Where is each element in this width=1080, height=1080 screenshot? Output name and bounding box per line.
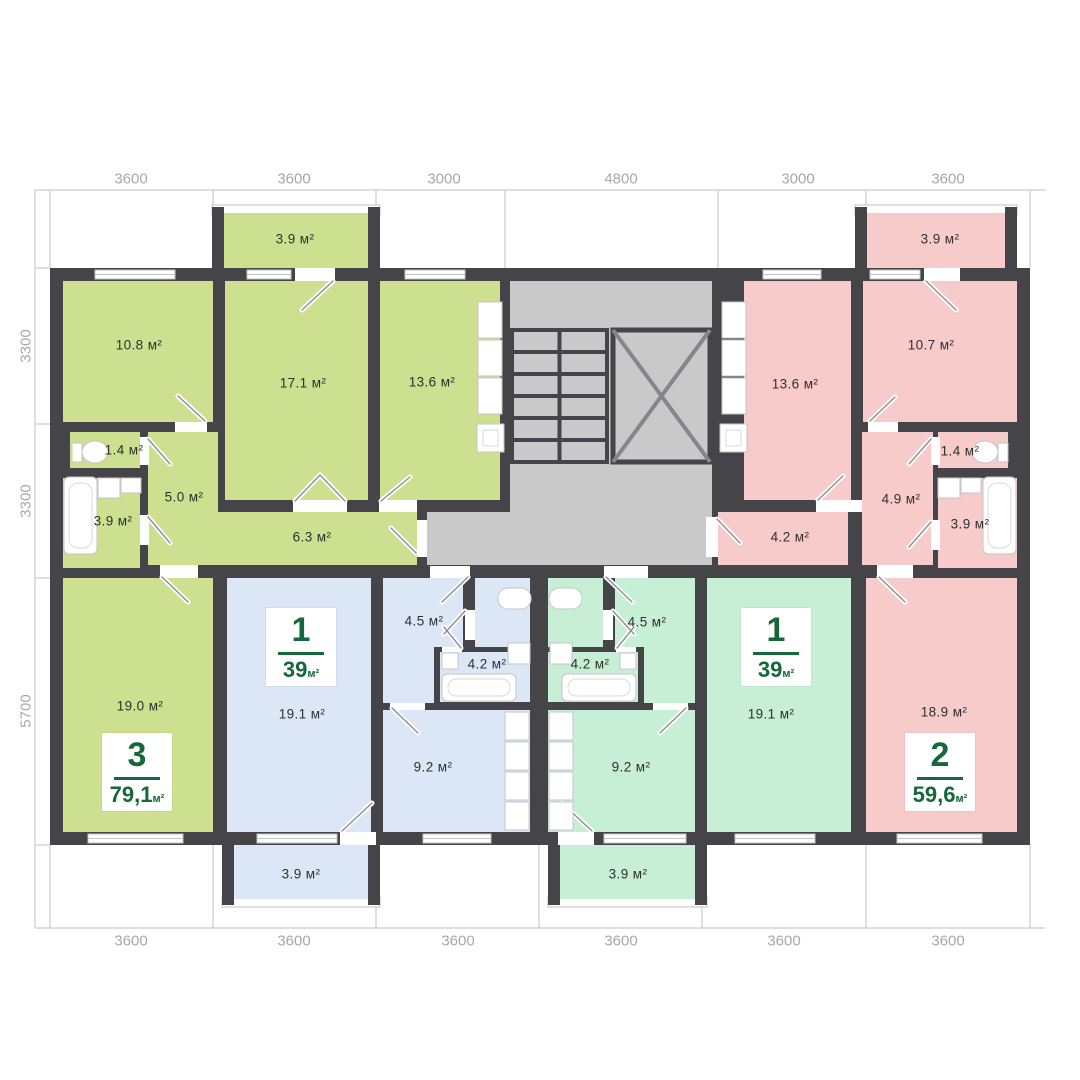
room-area-label: 4.2 м² [771,530,810,545]
staircase [512,330,607,462]
room-area-label: 5.0 м² [165,490,204,505]
apartment-area-value: 39 [758,657,782,682]
room-area-label: 4.5 м² [628,615,667,630]
floor-plan-drawing [0,0,1080,1080]
apartment-badge-3: 3 79,1м² [102,733,172,811]
room-area-label: 18.9 м² [921,705,968,720]
dim-top-6: 3600 [931,171,964,188]
room-area-label: 9.2 м² [414,760,453,775]
apartment-area-value: 79,1 [110,782,153,807]
room-area-label: 19.0 м² [117,699,164,714]
room-area-label: 6.3 м² [293,530,332,545]
room-area-label: 4.9 м² [882,492,921,507]
dim-left-3: 5700 [18,694,35,727]
room-area-label: 13.6 м² [772,377,819,392]
room-area-label: 3.9 м² [921,232,960,247]
sink-icon [549,588,582,609]
dim-top-3: 3000 [427,171,460,188]
apartment-badge-1-mint: 1 39м² [741,608,811,686]
room-area-label: 17.1 м² [280,376,327,391]
dim-left-1: 3300 [18,329,35,362]
dim-top-1: 3600 [114,171,147,188]
apartment-area-unit: м² [956,793,968,805]
badge-divider [278,652,324,655]
room-area-label: 13.6 м² [409,375,456,390]
dim-bottom-6: 3600 [931,933,964,950]
apartment-area: 59,6м² [913,784,968,806]
washer-icon [98,478,120,498]
bathtub-icon [562,674,636,701]
room-area-label: 19.1 м² [279,707,326,722]
kitchen-unit-icon [549,712,573,740]
elevator-shaft [613,330,710,462]
bathtub-icon [442,674,516,701]
dim-top-4: 4800 [604,171,637,188]
kitchen-unit-icon [505,712,529,740]
dim-left-2: 3300 [18,484,35,517]
dim-bottom-3: 3600 [441,933,474,950]
room-area-label: 3.9 м² [951,517,990,532]
room-area-label: 3.9 м² [282,867,321,882]
dim-bottom-4: 3600 [604,933,637,950]
room-17-1 [225,281,368,500]
badge-divider [114,777,160,780]
apartment-area-value: 59,6 [913,782,956,807]
room-area-label: 3.9 м² [94,514,133,529]
badge-divider [917,777,963,780]
apartment-number: 1 [767,613,786,647]
dim-bottom-1: 3600 [114,933,147,950]
corridor [427,512,712,565]
room-area-label: 4.2 м² [571,657,610,672]
room-area-label: 1.4 м² [105,443,144,458]
apartment-area-unit: м² [153,793,165,805]
dim-top-2: 3600 [277,171,310,188]
room-area-label: 3.9 м² [609,867,648,882]
apartment-number: 2 [931,738,950,772]
room-area-label: 4.2 м² [468,657,507,672]
toilet-icon [998,443,1008,462]
room-area-label: 10.8 м² [116,338,163,353]
sink-icon [498,588,531,609]
apartment-area-unit: м² [307,668,319,680]
floor-plan-canvas: 3600 3600 3000 4800 3000 3600 3300 3300 … [0,0,1080,1080]
room-area-label: 19.1 м² [748,707,795,722]
room-area-label: 3.9 м² [276,232,315,247]
room-area-label: 9.2 м² [612,760,651,775]
dim-top-5: 3000 [781,171,814,188]
apartment-area: 39м² [283,659,319,681]
apartment-badge-1-blue: 1 39м² [266,608,336,686]
dim-bottom-5: 3600 [767,933,800,950]
badge-divider [753,652,799,655]
room-area-label: 10.7 м² [908,338,955,353]
apartment-area-value: 39 [283,657,307,682]
apartment-number: 1 [292,613,311,647]
dim-bottom-2: 3600 [277,933,310,950]
kitchen-unit-icon [722,302,746,338]
washer-icon [938,478,960,498]
apartment-number: 3 [128,738,147,772]
kitchen-unit-icon [478,302,502,338]
room-area-label: 4.5 м² [405,614,444,629]
apartment-area: 39м² [758,659,794,681]
room-area-label: 1.4 м² [941,444,980,459]
apartment-badge-2: 2 59,6м² [905,733,975,811]
toilet-icon [72,443,82,462]
apartment-area-unit: м² [782,668,794,680]
apartment-area: 79,1м² [110,784,165,806]
